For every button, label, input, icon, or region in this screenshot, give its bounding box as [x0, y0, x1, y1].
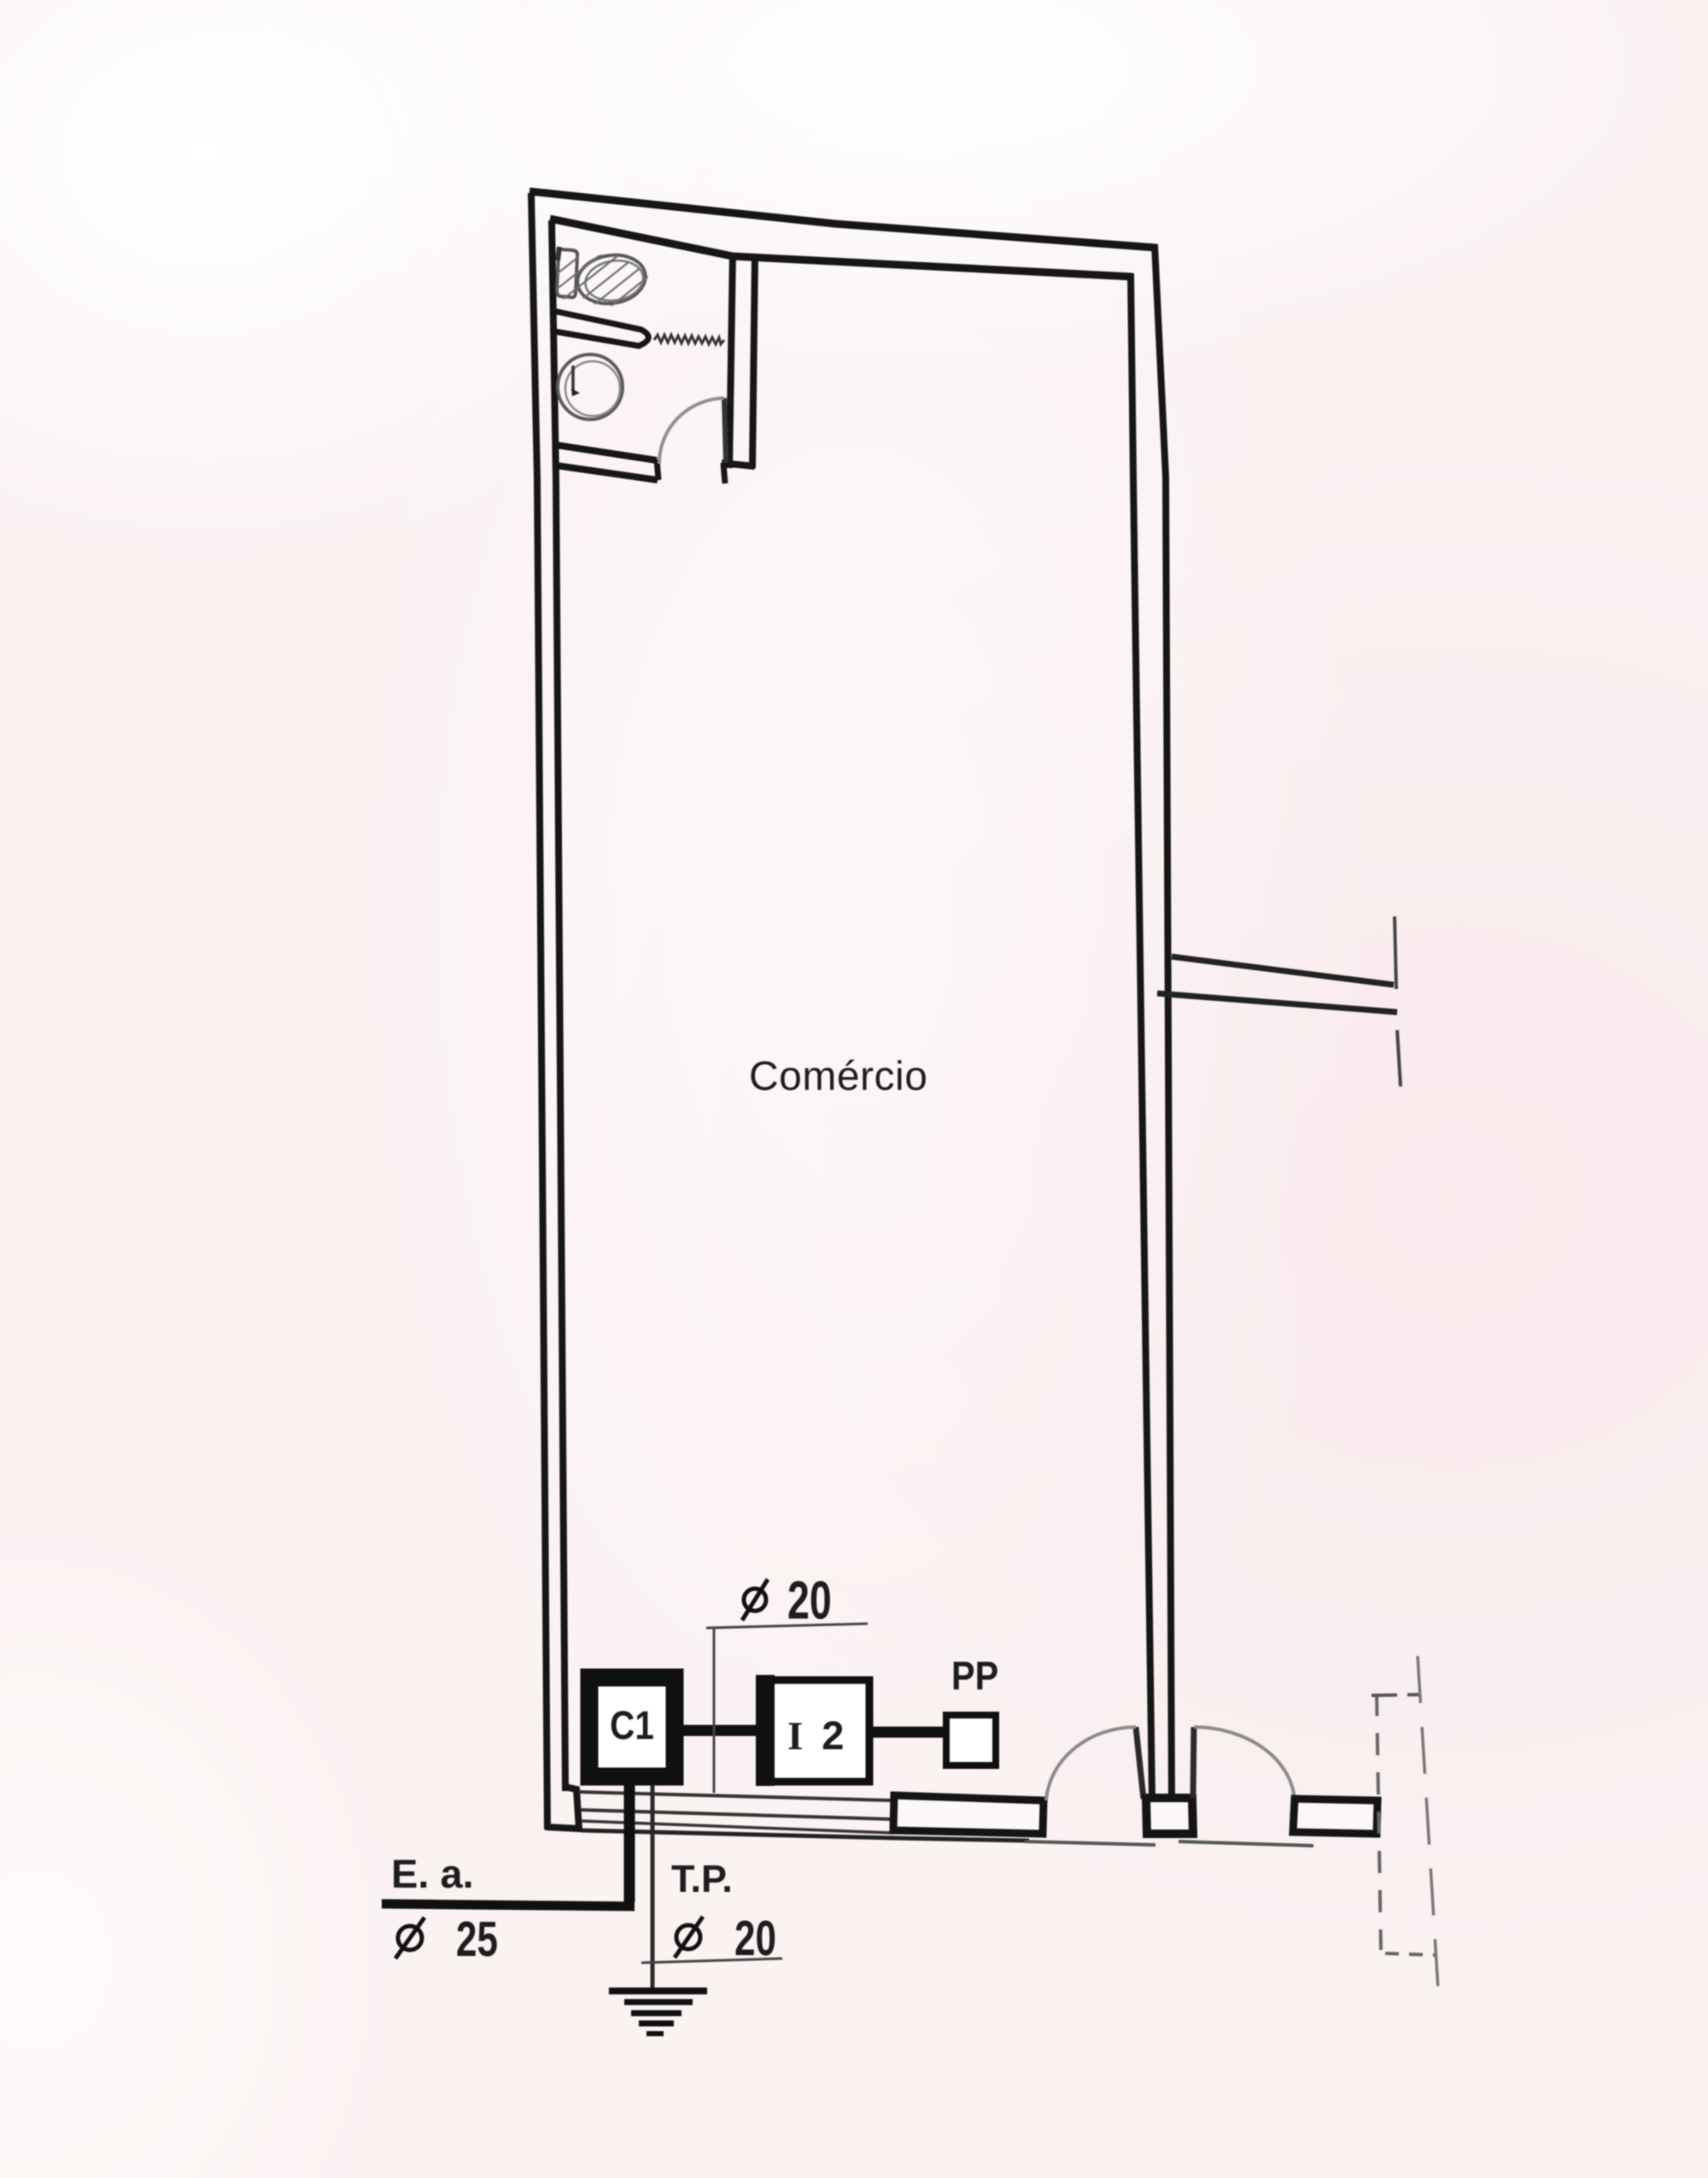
svg-text:25: 25 [456, 1912, 498, 1967]
svg-text:T.P.: T.P. [671, 1857, 733, 1900]
svg-text:PP: PP [951, 1653, 998, 1698]
svg-text:20: 20 [787, 1571, 832, 1631]
svg-text:Comércio: Comércio [749, 1054, 927, 1099]
svg-text:C1: C1 [610, 1702, 654, 1748]
svg-text:E. a.: E. a. [391, 1851, 474, 1896]
